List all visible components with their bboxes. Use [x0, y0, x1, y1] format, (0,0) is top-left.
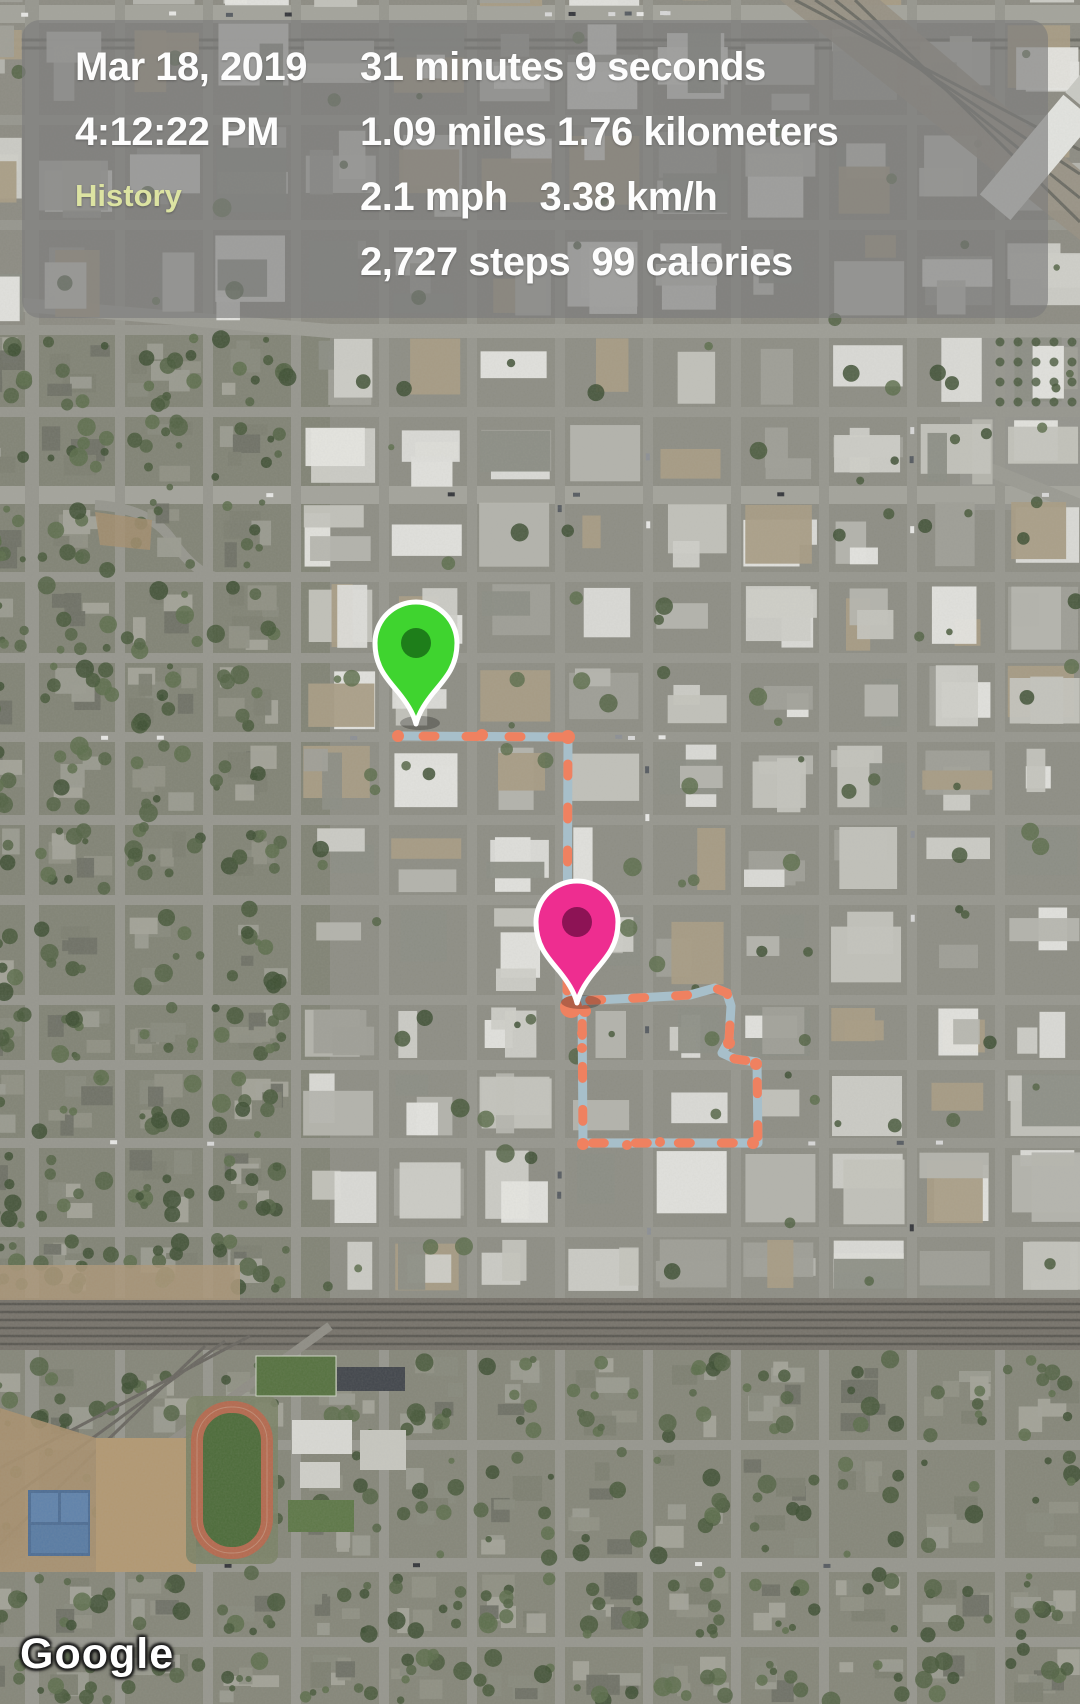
stats-panel: Mar 18, 2019 4:12:22 PM History 31 minut…	[22, 20, 1048, 318]
stat-duration: 31 minutes 9 seconds	[360, 35, 838, 100]
stat-speed: 2.1 mph 3.38 km/h	[360, 165, 838, 230]
walk-date: Mar 18, 2019	[75, 35, 307, 100]
stat-distance: 1.09 miles 1.76 kilometers	[360, 100, 838, 165]
google-logo: Google	[20, 1630, 174, 1679]
stat-steps-calories: 2,727 steps 99 calories	[360, 230, 838, 295]
walk-history-screen: Mar 18, 2019 4:12:22 PM History 31 minut…	[0, 0, 1080, 1704]
panel-right-column: 31 minutes 9 seconds 1.09 miles 1.76 kil…	[360, 35, 838, 295]
walk-time: 4:12:22 PM	[75, 100, 307, 165]
panel-left-column: Mar 18, 2019 4:12:22 PM History	[75, 35, 307, 230]
history-label: History	[75, 165, 307, 230]
